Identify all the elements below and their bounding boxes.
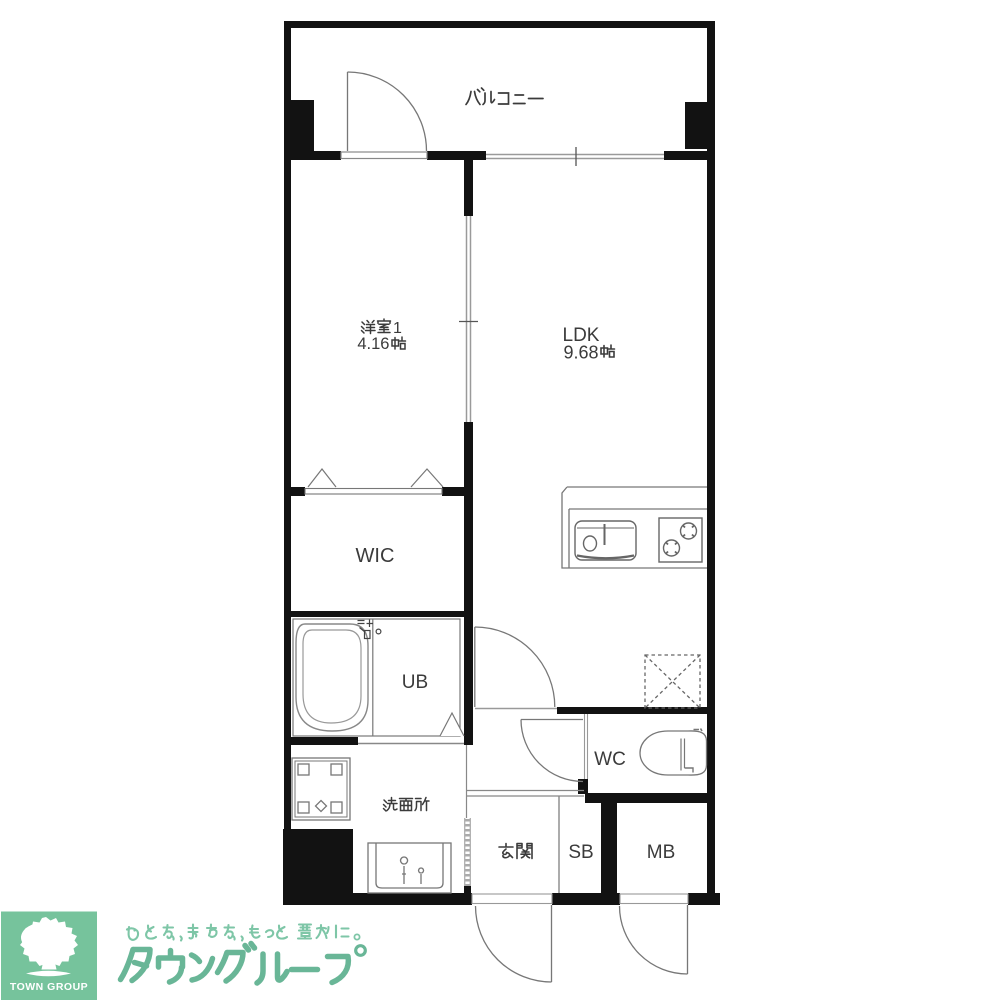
- svg-text:9.68: 9.68: [563, 343, 598, 363]
- svg-text:TOWN GROUP: TOWN GROUP: [10, 981, 88, 993]
- svg-text:MB: MB: [647, 842, 676, 863]
- svg-text:WIC: WIC: [356, 545, 395, 567]
- svg-text:SB: SB: [568, 842, 593, 863]
- svg-text:4.16: 4.16: [357, 335, 389, 353]
- svg-text:UB: UB: [402, 672, 428, 693]
- svg-text:WC: WC: [594, 749, 626, 770]
- svg-text:1: 1: [393, 320, 402, 337]
